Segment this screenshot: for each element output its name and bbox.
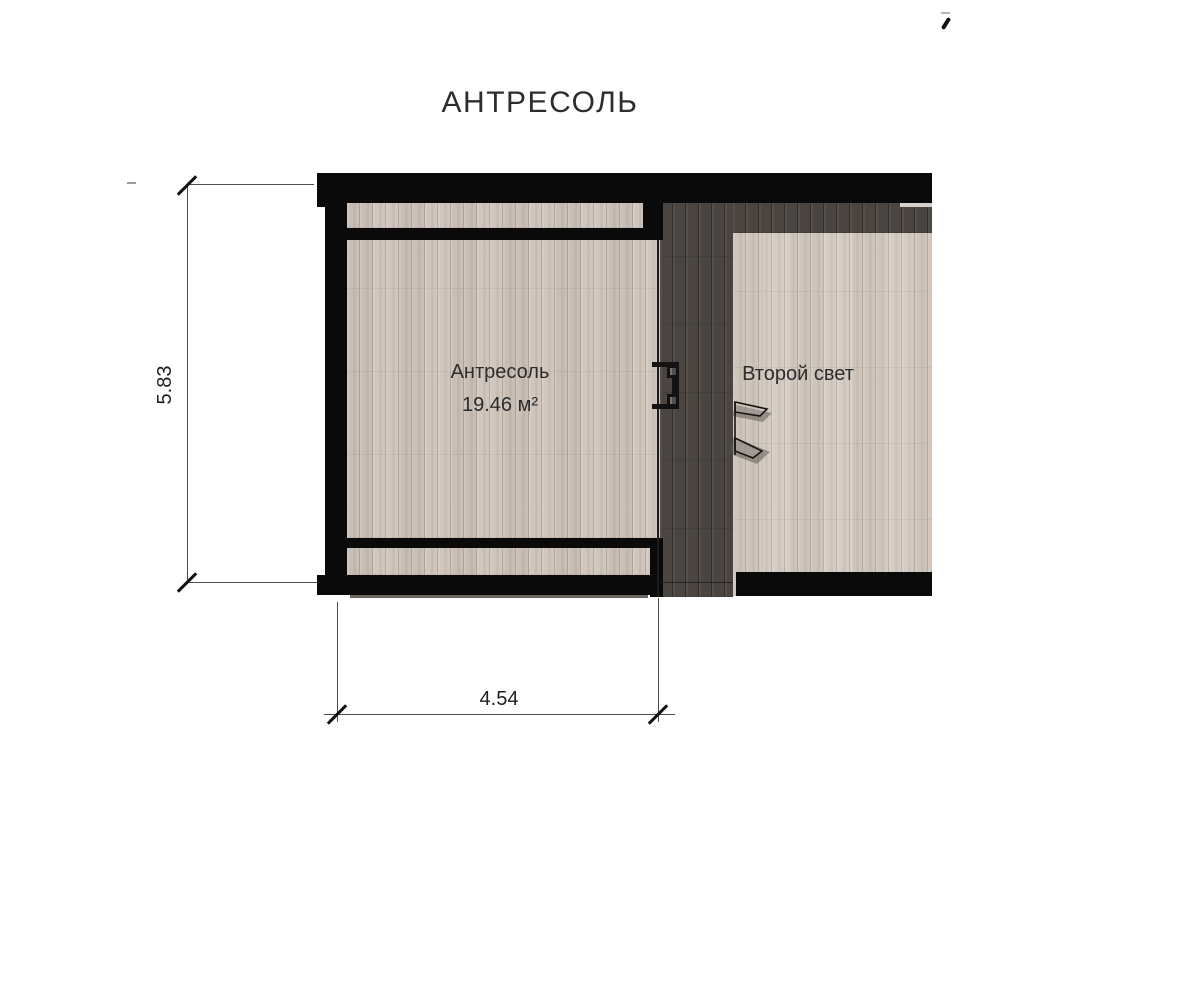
- dim-h-line: [324, 714, 675, 715]
- dim-h-ext-left: [337, 602, 338, 722]
- wall-inner-top: [347, 228, 663, 240]
- floor-room-mezzanine: [347, 240, 660, 538]
- floor-ledge-top: [347, 203, 643, 228]
- wall-top-left-cap: [317, 173, 344, 207]
- plan-title: АНТРЕСОЛЬ: [300, 86, 780, 120]
- label-mezzanine: Антресоль: [400, 360, 600, 384]
- cursor-mark: [941, 12, 950, 14]
- wall-bottom-second-light: [736, 572, 932, 596]
- cursor-mark-tail: [941, 17, 951, 30]
- wall-inner-bottom: [347, 538, 650, 548]
- door-handle-block-bottom: [667, 394, 679, 407]
- dash-top-left: [127, 182, 136, 184]
- wall-top-connector: [643, 203, 663, 228]
- wall-left: [325, 203, 347, 577]
- partition-line-room-corridor: [657, 240, 659, 597]
- dim-v-ext-bottom: [187, 582, 317, 583]
- dim-v-value: 5.83: [154, 335, 176, 435]
- dim-v-line: [187, 186, 188, 584]
- wall-top: [318, 173, 932, 203]
- wall-bottom-mezzanine: [317, 575, 663, 595]
- floor-shadow-bottom: [350, 595, 648, 598]
- floor-ledge-bottom: [347, 548, 650, 575]
- floor-notch-top-right: [900, 203, 932, 207]
- corridor-floor-joint-line: [660, 582, 733, 583]
- floor-corridor-top-arm: [733, 203, 932, 233]
- label-mezzanine-area: 19.46 м²: [400, 393, 600, 417]
- dim-h-ext-right: [658, 598, 659, 722]
- label-second-light: Второй свет: [698, 362, 898, 386]
- ladder-symbol: [722, 395, 782, 467]
- dim-h-value: 4.54: [449, 688, 549, 710]
- floor-plan-canvas: АНТРЕСОЛЬ Антресоль 19.46 м² Второй свет: [0, 0, 1200, 1007]
- dim-v-ext-top: [187, 184, 314, 185]
- door-handle-block-top: [667, 365, 679, 378]
